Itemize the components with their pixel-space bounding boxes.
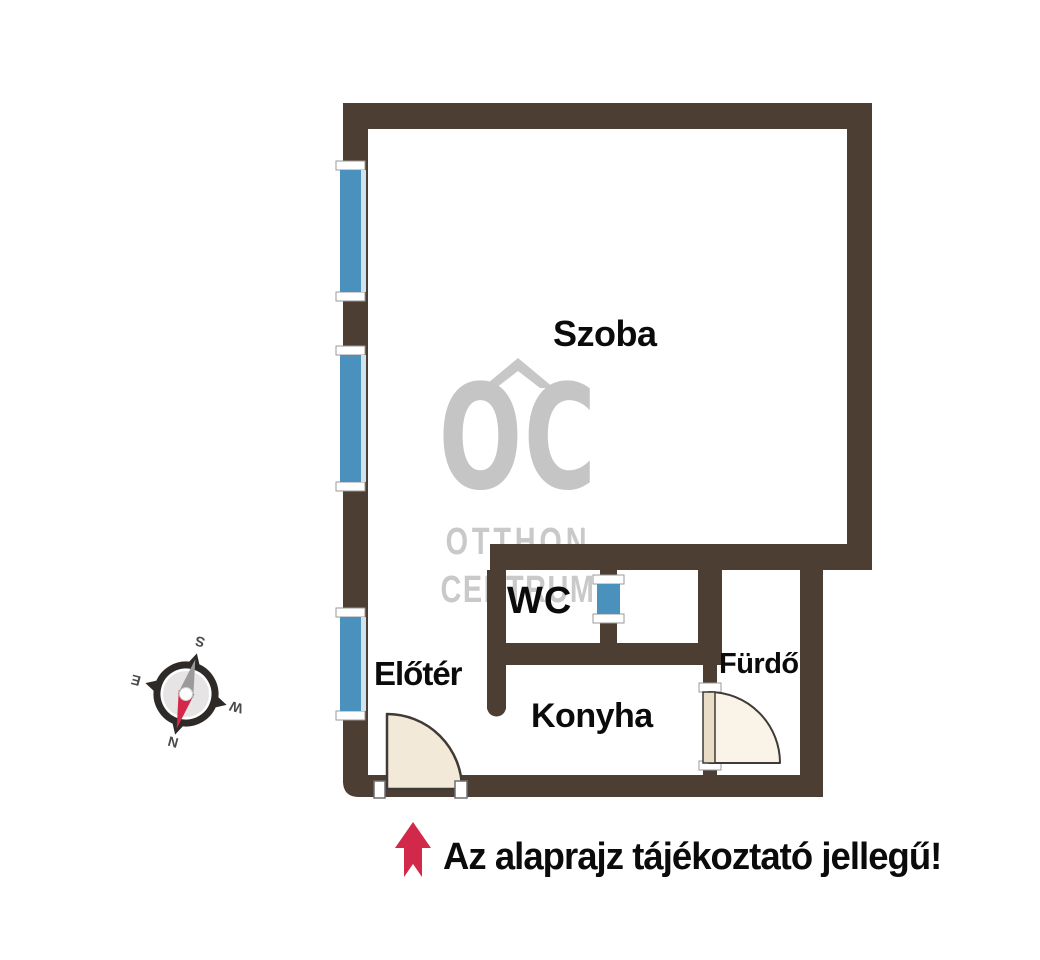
wc-window — [593, 575, 624, 623]
window-3 — [336, 608, 366, 720]
compass-label-w: W — [227, 698, 245, 717]
room-label-wc: WC — [507, 582, 572, 620]
window-2 — [336, 346, 366, 491]
compass-label-n: N — [166, 733, 180, 751]
compass-label-e: E — [129, 672, 142, 690]
wall-wc-bottom — [487, 643, 722, 665]
wall-right-szoba — [847, 103, 872, 562]
compass-label-s: S — [193, 633, 206, 651]
room-label-szoba: Szoba — [553, 316, 657, 352]
floorplan-page: OC OTTHON CENTRUM — [0, 0, 1040, 960]
compass-icon: N E S W — [116, 619, 258, 765]
walls — [343, 103, 872, 797]
windows — [336, 161, 624, 720]
wall-right-lower — [800, 562, 823, 797]
room-label-konyha: Konyha — [531, 699, 653, 733]
disclaimer-text: Az alaprajz tájékoztató jellegű! — [443, 837, 941, 879]
room-label-eloter: Előtér — [374, 657, 462, 690]
wall-stub-rounded-end — [487, 698, 506, 717]
floorplan-drawing: N E S W — [0, 0, 1040, 960]
wall-top — [343, 103, 872, 129]
entrance-door — [374, 714, 467, 798]
window-1 — [336, 161, 366, 301]
room-label-furdo: Fürdő — [719, 650, 799, 679]
wall-wc-left — [487, 570, 506, 709]
wall-furdo-left — [698, 544, 722, 665]
bathroom-door — [699, 683, 780, 770]
disclaimer-arrow-icon — [395, 822, 431, 877]
